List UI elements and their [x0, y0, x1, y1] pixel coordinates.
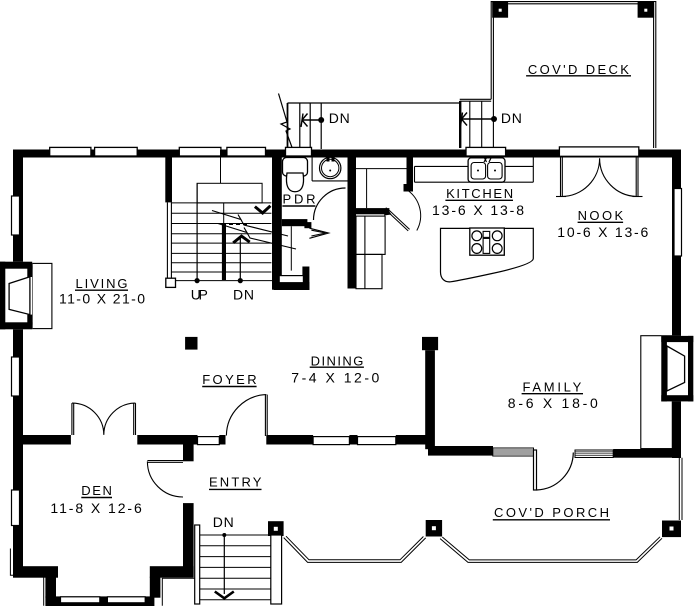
svg-text:PDR: PDR [283, 192, 316, 207]
svg-text:DN: DN [233, 286, 254, 302]
svg-text:DINING: DINING [311, 354, 364, 369]
svg-text:DN: DN [501, 110, 522, 126]
svg-text:DN: DN [329, 110, 350, 126]
svg-text:DN: DN [213, 514, 234, 530]
svg-text:DEN: DEN [81, 483, 112, 498]
svg-text:ENTRY: ENTRY [209, 475, 262, 490]
svg-text:11-0 X 21-0: 11-0 X 21-0 [59, 291, 145, 307]
svg-text:10-6 X 13-6: 10-6 X 13-6 [557, 224, 648, 240]
svg-text:COV'D PORCH: COV'D PORCH [494, 505, 609, 520]
svg-text:13-6 X 13-8: 13-6 X 13-8 [432, 202, 524, 218]
svg-text:11-8 X 12-6: 11-8 X 12-6 [50, 500, 142, 516]
svg-text:UP: UP [191, 286, 208, 302]
svg-text:KITCHEN: KITCHEN [446, 186, 513, 201]
